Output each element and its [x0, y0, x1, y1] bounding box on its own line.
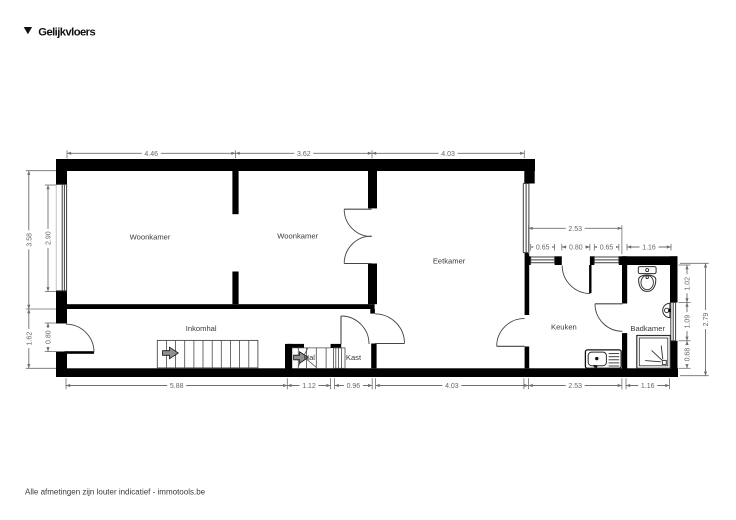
svg-text:4.03: 4.03	[445, 383, 459, 390]
svg-text:Hal: Hal	[304, 353, 316, 362]
svg-text:5.88: 5.88	[170, 383, 184, 390]
svg-text:1.16: 1.16	[641, 383, 655, 390]
svg-text:1.12: 1.12	[302, 383, 316, 390]
svg-text:Woonkamer: Woonkamer	[130, 233, 171, 242]
svg-text:4.46: 4.46	[144, 151, 158, 158]
svg-text:Gelijkvloers: Gelijkvloers	[38, 26, 95, 38]
svg-text:4.03: 4.03	[441, 151, 455, 158]
svg-text:2.79: 2.79	[703, 313, 710, 327]
svg-text:1.16: 1.16	[642, 245, 656, 252]
svg-text:Keuken: Keuken	[551, 323, 577, 332]
svg-text:Eetkamer: Eetkamer	[433, 256, 466, 265]
svg-text:Badkamer: Badkamer	[630, 324, 665, 333]
svg-text:2.53: 2.53	[568, 383, 582, 390]
svg-text:0.68: 0.68	[685, 348, 692, 362]
svg-text:0.65: 0.65	[536, 245, 550, 252]
svg-text:1.02: 1.02	[685, 277, 692, 291]
svg-text:2.90: 2.90	[46, 231, 53, 245]
svg-text:Inkomhal: Inkomhal	[186, 324, 217, 333]
svg-text:1.62: 1.62	[26, 332, 33, 346]
svg-text:Alle afmetingen zijn louter in: Alle afmetingen zijn louter indicatief -…	[25, 487, 206, 496]
svg-text:Kast: Kast	[346, 353, 362, 362]
svg-text:0.65: 0.65	[600, 245, 614, 252]
svg-text:0.96: 0.96	[347, 383, 361, 390]
svg-text:Woonkamer: Woonkamer	[277, 232, 318, 241]
svg-text:3.62: 3.62	[297, 151, 311, 158]
svg-text:3.58: 3.58	[26, 233, 33, 247]
svg-text:0.80: 0.80	[46, 330, 53, 344]
svg-text:0.80: 0.80	[569, 245, 583, 252]
svg-text:1.09: 1.09	[685, 315, 692, 329]
svg-text:2.53: 2.53	[568, 226, 582, 233]
